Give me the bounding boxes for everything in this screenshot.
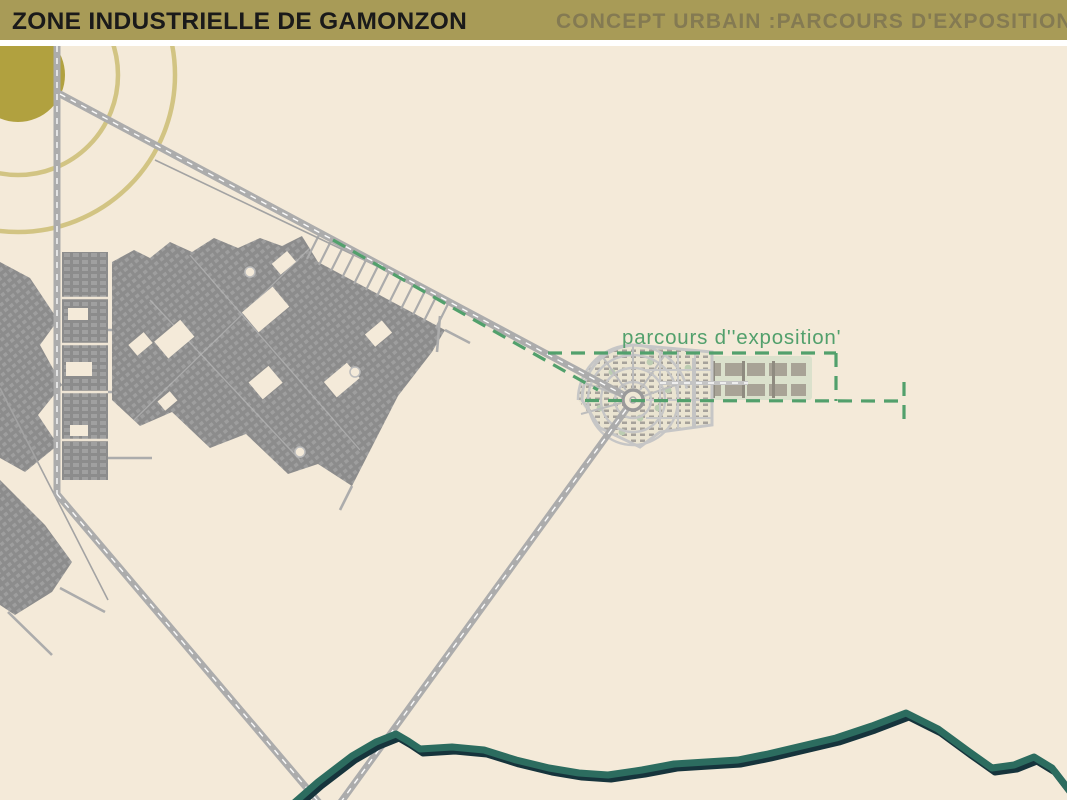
header: ZONE INDUSTRIELLE DE GAMONZON CONCEPT UR… bbox=[0, 0, 1067, 46]
page-subtitle: CONCEPT URBAIN :PARCOURS D'EXPOSITION bbox=[556, 10, 1067, 33]
exhibition-strip bbox=[698, 356, 812, 400]
urban-concept-map: parcours d''exposition' ZONE INDUSTRIELL… bbox=[0, 0, 1067, 800]
presentation-slide: parcours d''exposition' ZONE INDUSTRIELL… bbox=[0, 0, 1067, 800]
header-separator bbox=[0, 40, 1067, 46]
page-title: ZONE INDUSTRIELLE DE GAMONZON bbox=[12, 8, 467, 35]
route-label: parcours d''exposition' bbox=[622, 326, 841, 349]
